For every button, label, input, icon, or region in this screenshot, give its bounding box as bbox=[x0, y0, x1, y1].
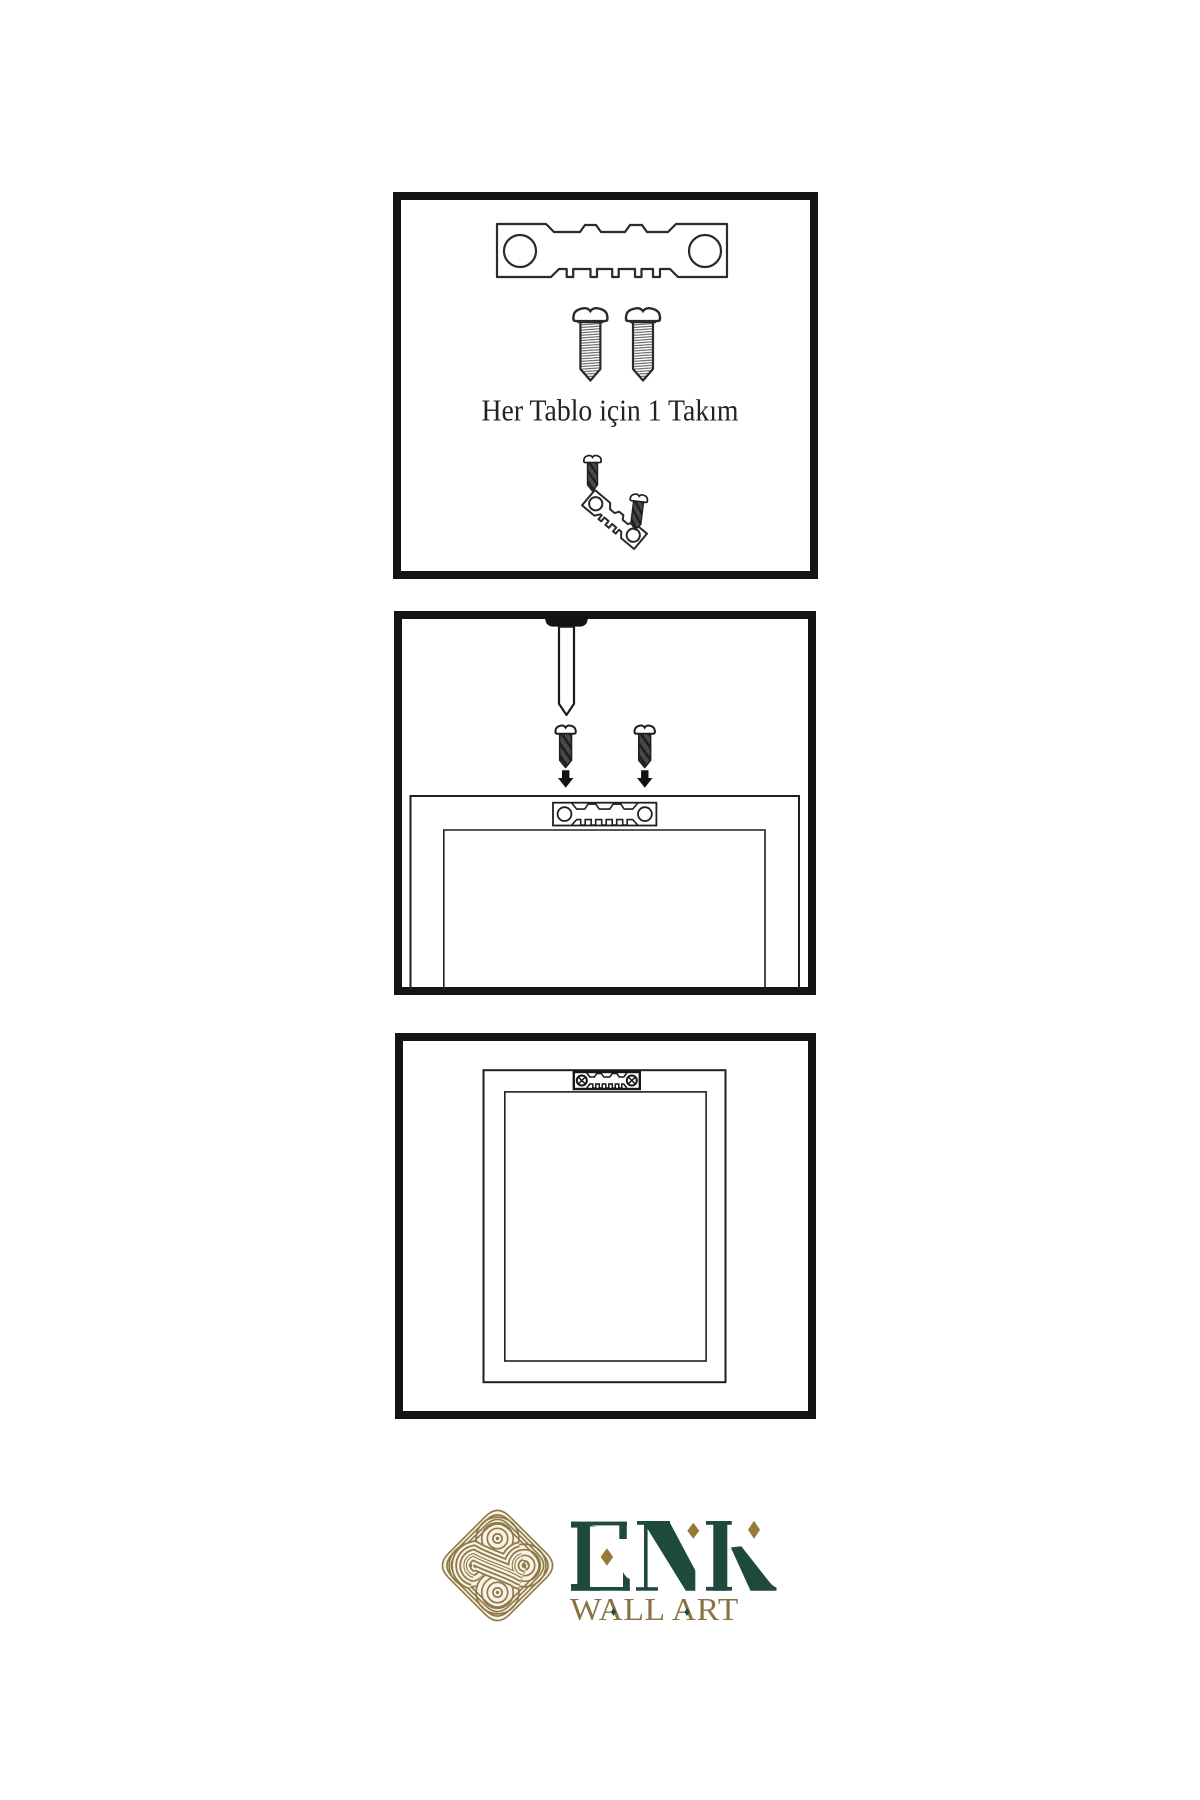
svg-text:Her Tablo için 1 Takım: Her Tablo için 1 Takım bbox=[482, 393, 739, 428]
svg-text:WALL ART: WALL ART bbox=[570, 1591, 739, 1627]
